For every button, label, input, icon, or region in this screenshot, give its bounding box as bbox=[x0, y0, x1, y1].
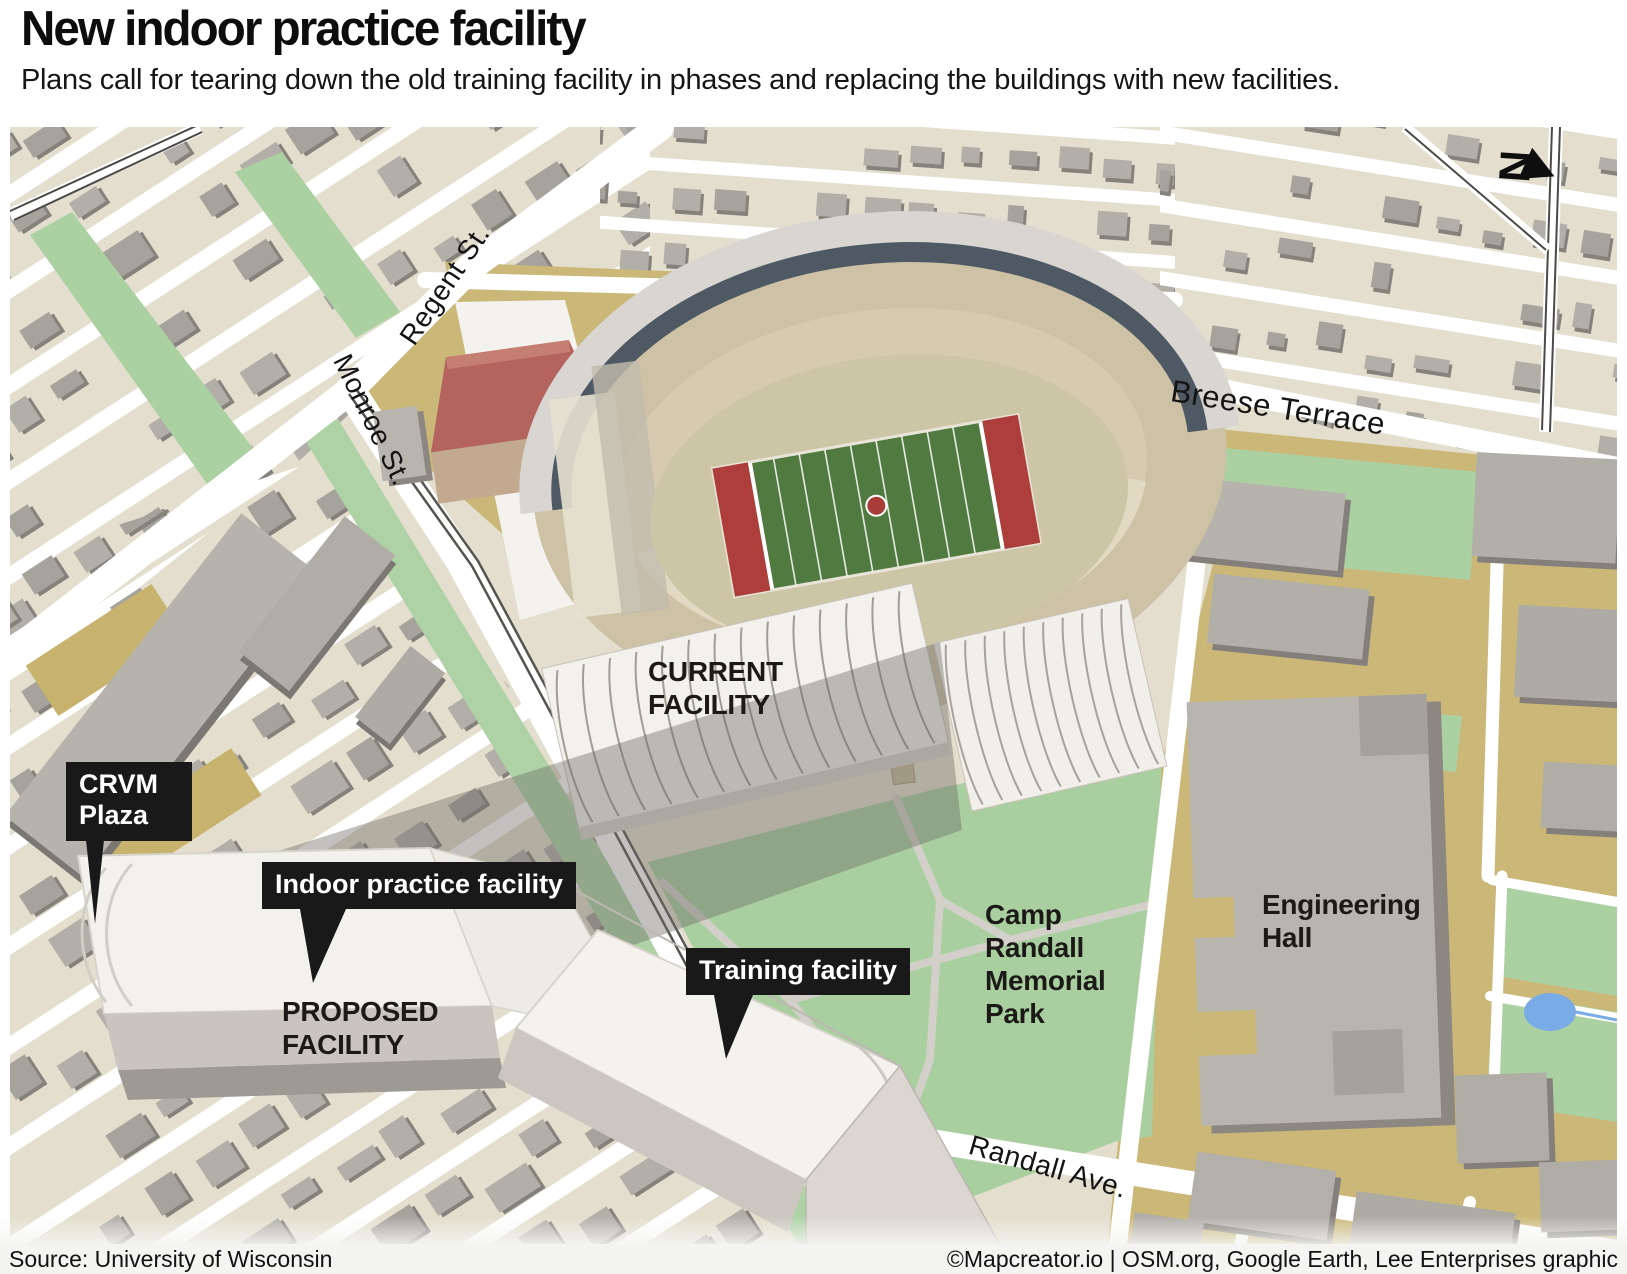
header: New indoor practice facility Plans call … bbox=[21, 4, 1617, 97]
map-bottom-fade bbox=[0, 1216, 1627, 1244]
callout-training-facility-label: Training facility bbox=[699, 955, 897, 985]
callout-training-facility-pointer bbox=[714, 995, 753, 1059]
source-credit: Source: University of Wisconsin bbox=[9, 1246, 332, 1273]
map-credit: ©Mapcreator.io | OSM.org, Google Earth, … bbox=[947, 1246, 1618, 1273]
callout-indoor-practice-facility-pointer bbox=[300, 909, 346, 983]
area-label-current-facility: CURRENT FACILITY bbox=[648, 655, 818, 721]
callout-crvm-plaza-pointer bbox=[86, 840, 104, 924]
street-label-breese-terrace: Breese Terrace bbox=[1168, 373, 1388, 442]
area-label-camp-randall-memorial-park: Camp Randall Memorial Park bbox=[985, 898, 1120, 1030]
street-label-randall-ave: Randall Ave. bbox=[965, 1129, 1130, 1205]
callout-indoor-practice-facility: Indoor practice facility bbox=[262, 862, 576, 909]
street-label-regent: Regent St. bbox=[393, 219, 496, 351]
map-graphic: Regent St. Monroe St. Breese Terrace Ran… bbox=[10, 127, 1617, 1244]
page-title: New indoor practice facility bbox=[21, 4, 1569, 55]
map-label-overlay: Regent St. Monroe St. Breese Terrace Ran… bbox=[10, 127, 1617, 1244]
north-arrow: N bbox=[1495, 139, 1559, 197]
page-subtitle: Plans call for tearing down the old trai… bbox=[21, 64, 1617, 97]
street-label-monroe: Monroe St. bbox=[327, 349, 418, 491]
callout-crvm-plaza: CRVM Plaza bbox=[66, 762, 192, 841]
area-label-proposed-facility: PROPOSED FACILITY bbox=[282, 995, 457, 1061]
callout-training-facility: Training facility bbox=[686, 948, 910, 995]
infographic-page: New indoor practice facility Plans call … bbox=[0, 0, 1627, 1274]
footer: Source: University of Wisconsin ©Mapcrea… bbox=[0, 1244, 1627, 1274]
callout-crvm-plaza-label: CRVM Plaza bbox=[79, 769, 158, 830]
area-label-engineering-hall: Engineering Hall bbox=[1262, 888, 1447, 954]
callout-indoor-practice-facility-label: Indoor practice facility bbox=[275, 869, 563, 899]
